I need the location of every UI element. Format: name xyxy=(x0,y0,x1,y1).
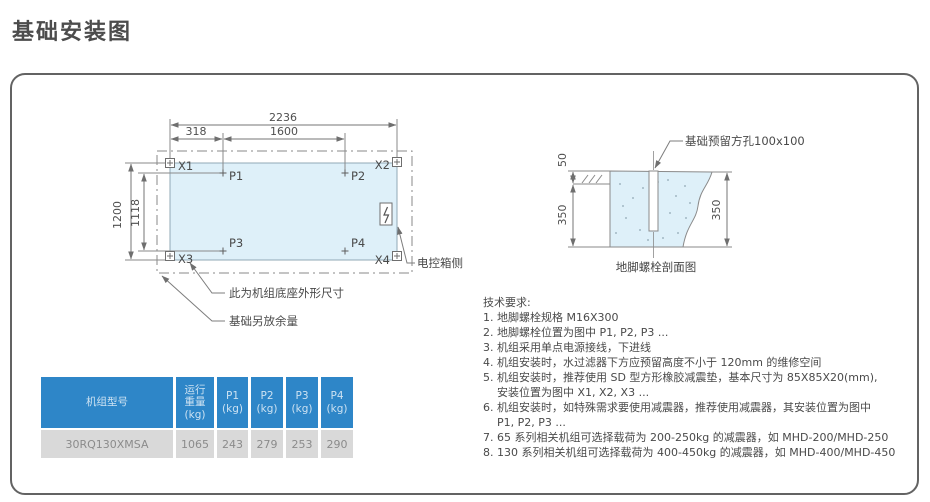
requirement-line: 5. 机组安装时，推荐使用 SD 型方形橡胶减震垫，基本尺寸为 85X85X20… xyxy=(483,370,915,385)
col-header-p3: P3 (kg) xyxy=(286,377,318,428)
col-header-model-text: 机组型号 xyxy=(86,396,128,409)
dim-50: 50 xyxy=(558,153,569,167)
requirement-line: 6. 机组安装时，如特殊需求要使用减震器，推荐使用减震器，其安装位置为图中 xyxy=(483,400,915,415)
dim-bolt-span: 1600 xyxy=(270,125,298,138)
cell-model: 30RQ130XMSA xyxy=(41,430,173,458)
corner-label-x1: X1 xyxy=(178,159,193,173)
bolt-label-p3: P3 xyxy=(229,236,243,250)
reserved-hole xyxy=(649,171,658,231)
concrete-block xyxy=(610,171,712,247)
foundation-margin-label: 基础另放余量 xyxy=(229,314,298,328)
dim-bolt-height: 1118 xyxy=(129,199,142,227)
requirement-line: 3. 机组采用单点电源接线，下进线 xyxy=(483,340,915,355)
bolt-label-p2: P2 xyxy=(351,169,365,183)
control-box-side-label: 电控箱侧 xyxy=(417,256,463,270)
dim-total-height: 1200 xyxy=(111,201,124,229)
requirement-line: 安装位置为图中 X1, X2, X3 ... xyxy=(483,385,915,400)
foundation-margin-leader xyxy=(162,276,225,321)
requirement-line: P1, P2, P3 ... xyxy=(483,415,915,430)
electric-box-icon xyxy=(380,203,392,225)
technical-requirements: 技术要求: 1. 地脚螺栓规格 M16X300 2. 地脚螺栓位置为图中 P1,… xyxy=(483,295,915,460)
bolt-label-p1: P1 xyxy=(229,169,243,183)
col-header-model: 机组型号 xyxy=(41,377,173,428)
corner-label-x2: X2 xyxy=(375,158,390,172)
plan-view-diagram: 2236 318 1600 1200 1118 X1 X2 X3 X4 P1 P… xyxy=(108,95,473,355)
requirement-line: 4. 机组安装时，水过滤器下方应预留高度不小于 120mm 的维修空间 xyxy=(483,355,915,370)
ground-hatch xyxy=(573,175,610,184)
requirement-line: 7. 65 系列相关机组可选择载荷为 200-250kg 的减震器，如 MHD-… xyxy=(483,430,915,445)
dim-350-right: 350 xyxy=(710,200,723,221)
col-header-p1: P1 (kg) xyxy=(217,377,248,428)
col-header-p2: P2 (kg) xyxy=(251,377,283,428)
cell-weight: 1065 xyxy=(176,430,214,458)
requirements-heading: 技术要求: xyxy=(483,295,915,310)
cell-p4: 290 xyxy=(321,430,353,458)
unit-weight-table: 机组型号 运行 重量 (kg) P1 (kg) P2 (kg) P3 (kg) … xyxy=(41,377,353,458)
col-header-weight: 运行 重量 (kg) xyxy=(176,377,214,428)
page-title: 基础安装图 xyxy=(12,14,132,46)
dim-350-left: 350 xyxy=(558,205,569,226)
bolt-label-p4: P4 xyxy=(351,236,365,250)
requirement-line: 8. 130 系列相关机组可选择载荷为 400-450kg 的减震器，如 MHD… xyxy=(483,445,915,460)
corner-label-x4: X4 xyxy=(375,253,390,267)
cell-p2: 279 xyxy=(251,430,283,458)
col-header-p4: P4 (kg) xyxy=(321,377,353,428)
base-outline-label: 此为机组底座外形尺寸 xyxy=(229,286,344,300)
dim-left-offset: 318 xyxy=(186,125,207,138)
base-outline-leader xyxy=(190,263,225,293)
cell-p1: 243 xyxy=(217,430,248,458)
requirement-line: 1. 地脚螺栓规格 M16X300 xyxy=(483,310,915,325)
requirement-line: 2. 地脚螺栓位置为图中 P1, P2, P3 ... xyxy=(483,325,915,340)
bolt-section-diagram: 50 350 350 基础预留方孔100x100 地脚螺栓剖面图 xyxy=(558,118,858,293)
hole-label: 基础预留方孔100x100 xyxy=(685,134,805,148)
cell-p3: 253 xyxy=(286,430,318,458)
section-caption: 地脚螺栓剖面图 xyxy=(616,260,697,274)
dim-total-width: 2236 xyxy=(269,111,297,124)
hole-leader xyxy=(655,141,683,168)
